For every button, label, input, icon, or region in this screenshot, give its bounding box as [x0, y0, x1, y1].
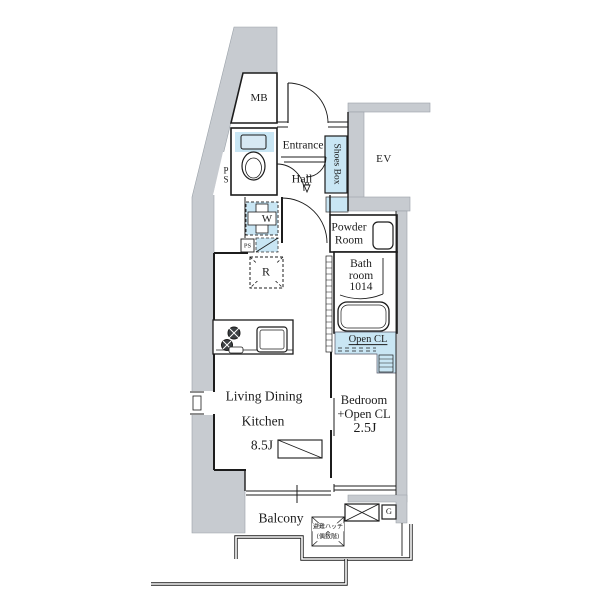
ldk-door-arc: [282, 198, 327, 243]
bathroom-label: Bath room 1014: [349, 259, 373, 294]
balcony-label: Balcony: [259, 510, 304, 525]
elevator-label: EV: [376, 153, 392, 165]
hall-marker: [304, 185, 310, 192]
kitchen-sink: [257, 327, 287, 352]
evacuation-hatch-label-line1: 避難ハッチ: [312, 523, 344, 531]
powder-sink: [373, 222, 393, 249]
powder-room-label: Powder Room: [331, 221, 366, 246]
ldk-label-line2: Kitchen: [242, 413, 285, 428]
pipe-space-label: PS: [244, 242, 251, 249]
site-outline-inner: [151, 559, 346, 584]
balcony-outline: [151, 524, 411, 584]
pipe-shaft-label: P S: [223, 167, 228, 186]
shoes-box-label: Shoes Box: [331, 144, 342, 185]
toilet-tank: [241, 135, 266, 149]
bathtub: [338, 302, 389, 331]
gas-meter-label: G: [386, 507, 392, 517]
site-outline: [151, 559, 346, 584]
bedroom-label-line2: +Open CL: [337, 407, 390, 421]
ev-wall-top: [348, 103, 430, 112]
ev-wall-left: [348, 112, 364, 200]
bedroom-window: [334, 484, 396, 492]
balcony-sliding-door: [246, 491, 331, 495]
floor-plan: MB P S Entrance Hall Shoes Box EV Powder…: [0, 0, 600, 600]
evacuation-hatch-label-line2: (偶数階): [316, 533, 341, 541]
ldk-size-label: 8.5J: [251, 437, 273, 452]
entrance-step-lines: [281, 157, 326, 162]
meter-box-label: MB: [250, 92, 267, 104]
bedroom-size-label: 2.5J: [354, 421, 377, 437]
front-door-arc: [288, 83, 328, 123]
entrance-label: Entrance: [283, 140, 324, 153]
bedroom-label-line1: Bedroom: [341, 393, 388, 407]
stove-grill: [229, 347, 243, 353]
washer-label: W: [262, 213, 272, 225]
open-closet-label: Open CL: [349, 334, 388, 346]
ldk-label-line1: Living Dining: [226, 388, 303, 403]
hall-label: Hall: [292, 172, 313, 185]
refrigerator-label: R: [262, 265, 270, 278]
ev-wall-bottom: [348, 197, 410, 211]
